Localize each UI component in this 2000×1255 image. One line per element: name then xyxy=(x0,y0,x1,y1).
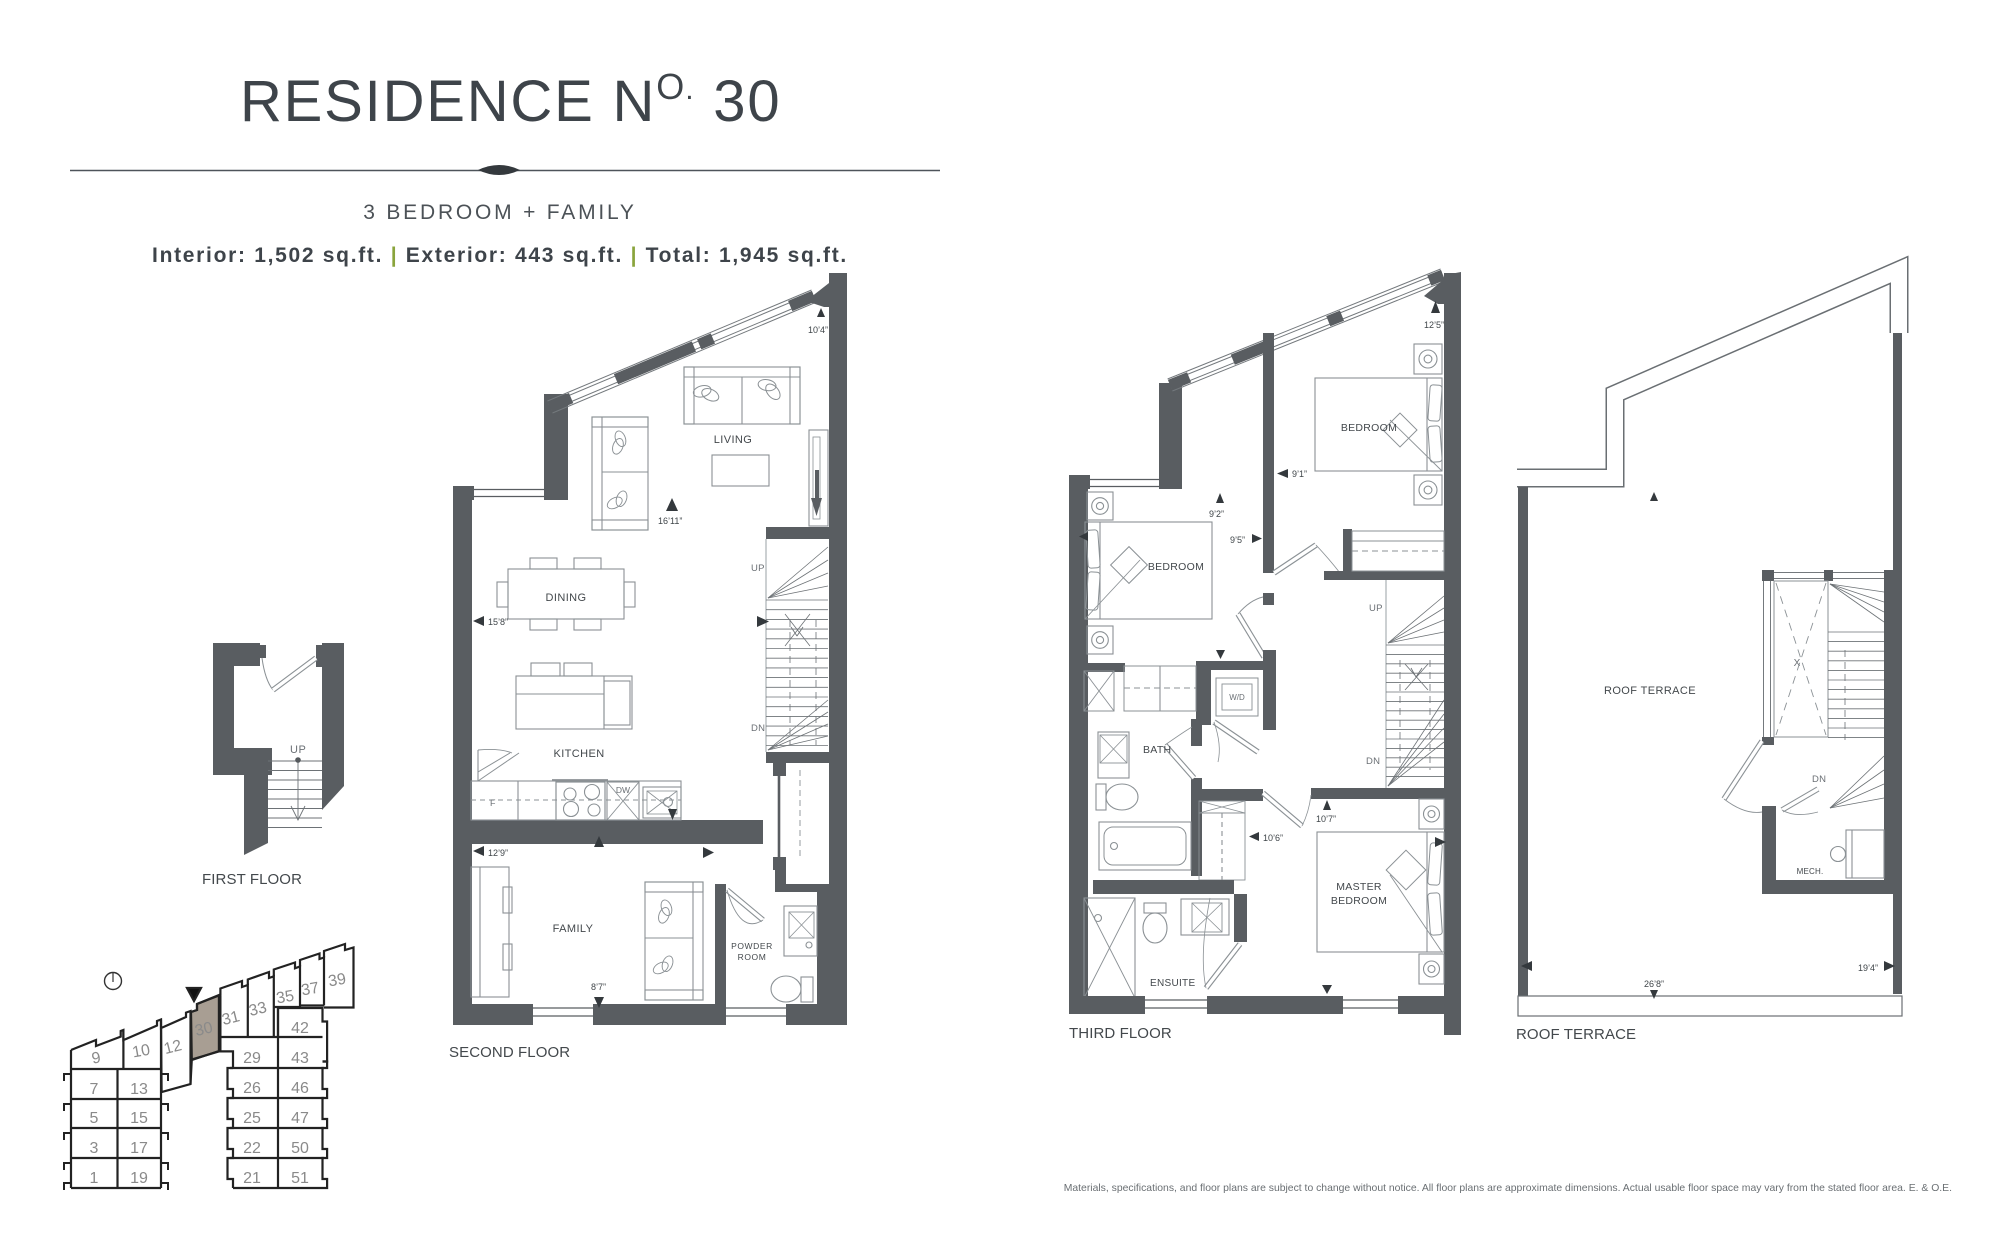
svg-text:21: 21 xyxy=(243,1170,261,1187)
svg-text:31: 31 xyxy=(220,1008,241,1029)
svg-text:MECH.: MECH. xyxy=(1797,867,1824,876)
svg-text:Interior: 1,502 sq.ft. | Exter: Interior: 1,502 sq.ft. | Exterior: 443 s… xyxy=(152,244,848,267)
svg-text:19: 19 xyxy=(130,1170,148,1187)
svg-text:BEDROOM: BEDROOM xyxy=(1331,895,1387,907)
svg-text:3 BEDROOM + FAMILY: 3 BEDROOM + FAMILY xyxy=(363,201,636,224)
svg-text:19’4”: 19’4” xyxy=(1858,963,1878,973)
svg-text:22: 22 xyxy=(243,1140,261,1157)
svg-text:BEDROOM: BEDROOM xyxy=(1148,561,1204,573)
svg-text:9’1”: 9’1” xyxy=(1292,469,1307,479)
svg-text:KITCHEN: KITCHEN xyxy=(553,748,604,760)
svg-text:12’9”: 12’9” xyxy=(488,848,508,858)
svg-text:Materials, specifications, and: Materials, specifications, and floor pla… xyxy=(1064,1183,1952,1194)
svg-text:9: 9 xyxy=(90,1049,102,1067)
svg-text:9’2”: 9’2” xyxy=(1209,509,1224,519)
svg-text:12: 12 xyxy=(162,1037,183,1058)
svg-text:MASTER: MASTER xyxy=(1336,881,1382,893)
svg-text:16’11”: 16’11” xyxy=(658,516,682,526)
svg-text:FAMILY: FAMILY xyxy=(553,923,594,935)
svg-text:43: 43 xyxy=(291,1050,309,1067)
svg-text:FIRST FLOOR: FIRST FLOOR xyxy=(202,871,302,888)
svg-text:46: 46 xyxy=(291,1080,309,1097)
svg-text:ROOF TERRACE: ROOF TERRACE xyxy=(1604,685,1696,697)
svg-text:RESIDENCE NO. 30: RESIDENCE NO. 30 xyxy=(240,66,781,134)
svg-text:7: 7 xyxy=(90,1081,99,1098)
svg-text:35: 35 xyxy=(275,988,296,1008)
svg-text:15’8”: 15’8” xyxy=(488,617,508,627)
svg-text:X: X xyxy=(1794,658,1801,669)
svg-text:10: 10 xyxy=(131,1042,152,1062)
svg-text:10’4”: 10’4” xyxy=(808,325,828,335)
svg-text:BATH: BATH xyxy=(1143,744,1171,756)
svg-text:5: 5 xyxy=(90,1110,99,1127)
svg-text:26: 26 xyxy=(243,1080,261,1097)
svg-text:10’6”: 10’6” xyxy=(1263,833,1283,843)
svg-text:51: 51 xyxy=(291,1170,309,1187)
svg-text:BEDROOM: BEDROOM xyxy=(1341,422,1397,434)
svg-text:29: 29 xyxy=(243,1050,261,1067)
svg-text:15: 15 xyxy=(130,1110,148,1127)
svg-text:26’8”: 26’8” xyxy=(1644,979,1664,989)
svg-text:LIVING: LIVING xyxy=(714,434,752,446)
svg-text:DN: DN xyxy=(1366,756,1380,767)
svg-text:DW: DW xyxy=(616,785,630,795)
svg-text:W/D: W/D xyxy=(1229,693,1245,702)
svg-text:42: 42 xyxy=(291,1020,309,1037)
svg-text:ROOM: ROOM xyxy=(738,952,767,962)
svg-text:UP: UP xyxy=(751,563,765,574)
svg-text:33: 33 xyxy=(247,999,268,1020)
svg-text:10’7”: 10’7” xyxy=(1316,814,1336,824)
svg-text:SECOND FLOOR: SECOND FLOOR xyxy=(449,1044,570,1061)
svg-text:ENSUITE: ENSUITE xyxy=(1150,978,1195,989)
svg-text:UP: UP xyxy=(1369,603,1383,614)
svg-text:ROOF TERRACE: ROOF TERRACE xyxy=(1516,1026,1636,1043)
svg-text:39: 39 xyxy=(327,971,348,991)
svg-text:17: 17 xyxy=(130,1140,148,1157)
svg-text:9’5”: 9’5” xyxy=(1230,535,1245,545)
svg-text:DINING: DINING xyxy=(546,592,587,604)
svg-text:UP: UP xyxy=(290,744,306,756)
svg-text:3: 3 xyxy=(90,1140,99,1157)
svg-text:25: 25 xyxy=(243,1110,261,1127)
svg-text:F: F xyxy=(490,798,496,808)
svg-text:THIRD FLOOR: THIRD FLOOR xyxy=(1069,1025,1172,1042)
svg-text:POWDER: POWDER xyxy=(731,941,773,951)
svg-text:50: 50 xyxy=(291,1140,309,1157)
svg-text:1: 1 xyxy=(90,1170,99,1187)
svg-text:12’5”: 12’5” xyxy=(1424,320,1444,330)
svg-text:8’7”: 8’7” xyxy=(591,982,606,992)
svg-text:DN: DN xyxy=(1812,774,1826,785)
svg-text:47: 47 xyxy=(291,1110,309,1127)
svg-text:13: 13 xyxy=(130,1081,148,1098)
svg-text:DN: DN xyxy=(751,723,765,734)
svg-text:37: 37 xyxy=(300,980,321,1000)
